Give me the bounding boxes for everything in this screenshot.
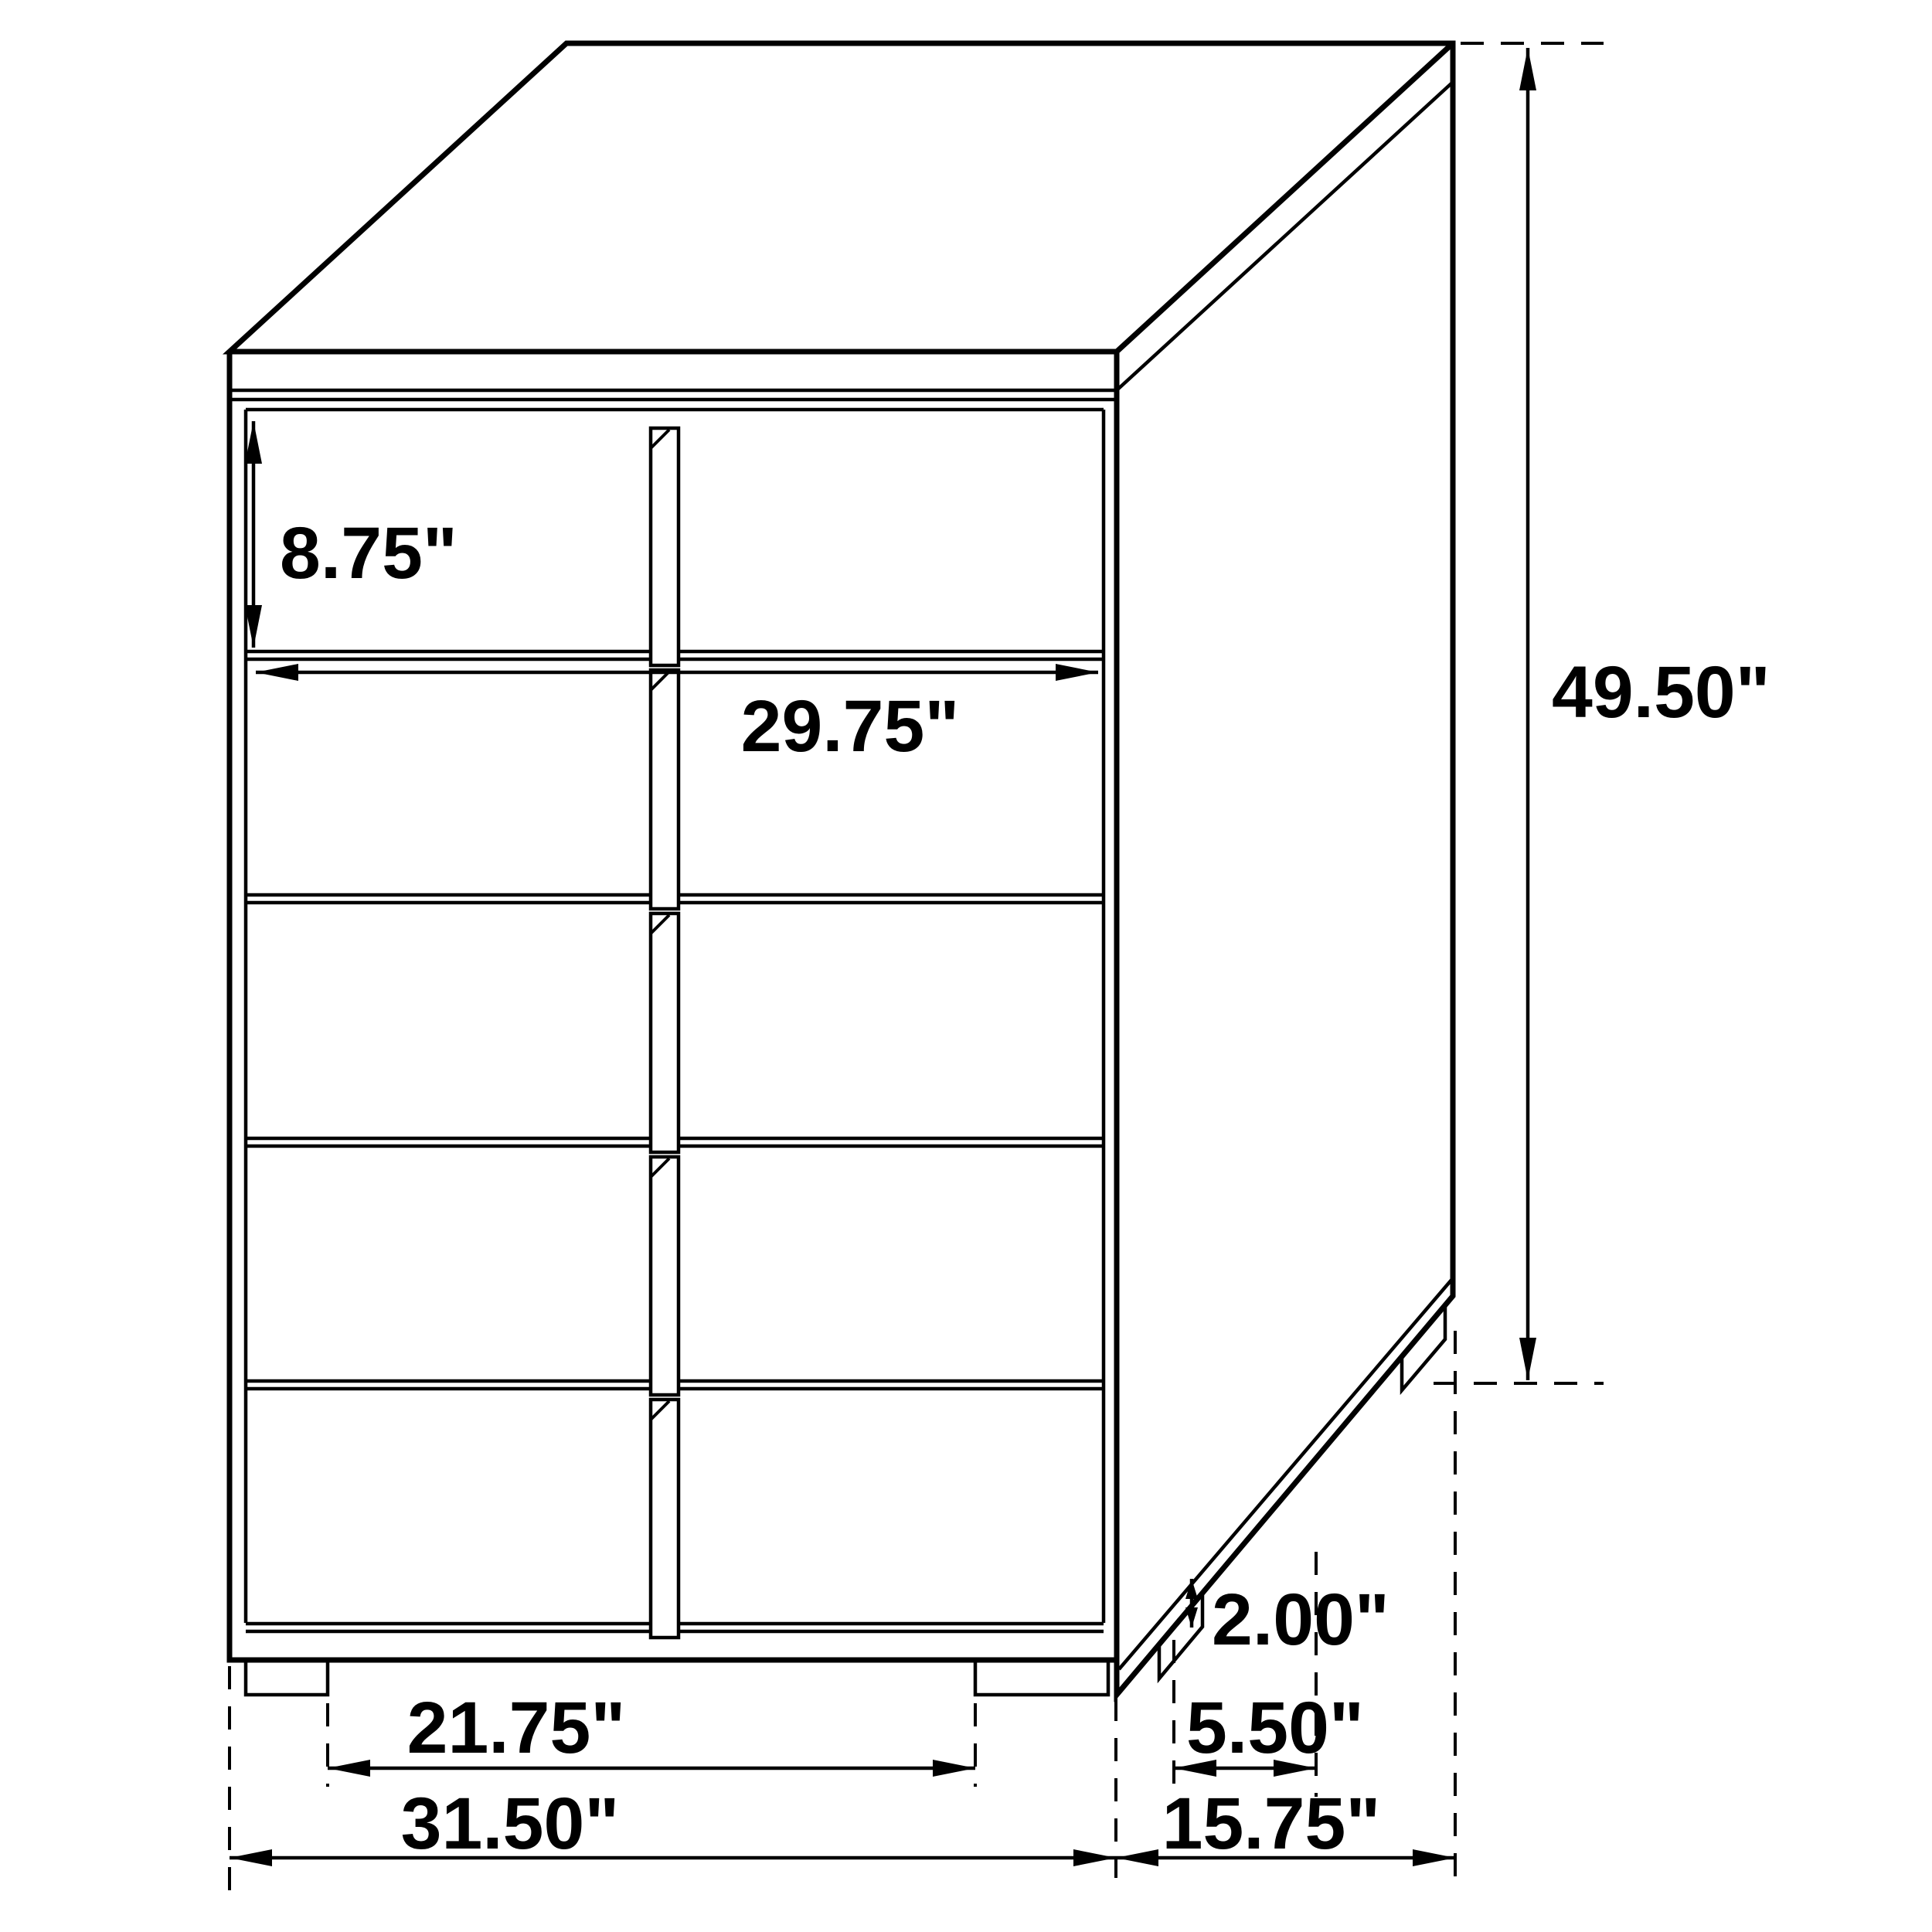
drawer-handle-bars — [651, 428, 679, 1638]
dim-label-overall-width: 31.50" — [401, 1783, 620, 1865]
handle-bar — [651, 1157, 679, 1395]
canvas-background — [0, 0, 1932, 1932]
handle-bar — [651, 913, 679, 1152]
dim-label-drawer-width: 29.75" — [741, 685, 960, 767]
dim-label-overall-depth: 15.75" — [1162, 1783, 1381, 1865]
dim-label-drawer-height: 8.75" — [280, 512, 457, 594]
dim-label-front-leg-span: 21.75" — [407, 1687, 626, 1769]
dim-label-leg-height: 2.00" — [1212, 1579, 1389, 1661]
dim-label-side-leg-inset: 5.50" — [1186, 1687, 1364, 1769]
handle-bar — [651, 1400, 679, 1638]
handle-bar — [651, 670, 679, 909]
handle-bar — [651, 428, 679, 665]
dim-label-overall-height: 49.50" — [1552, 651, 1770, 733]
dimension-diagram: 8.75" 29.75" 49.50" 2.00" 5.50" 21.75" 3… — [0, 0, 1932, 1932]
